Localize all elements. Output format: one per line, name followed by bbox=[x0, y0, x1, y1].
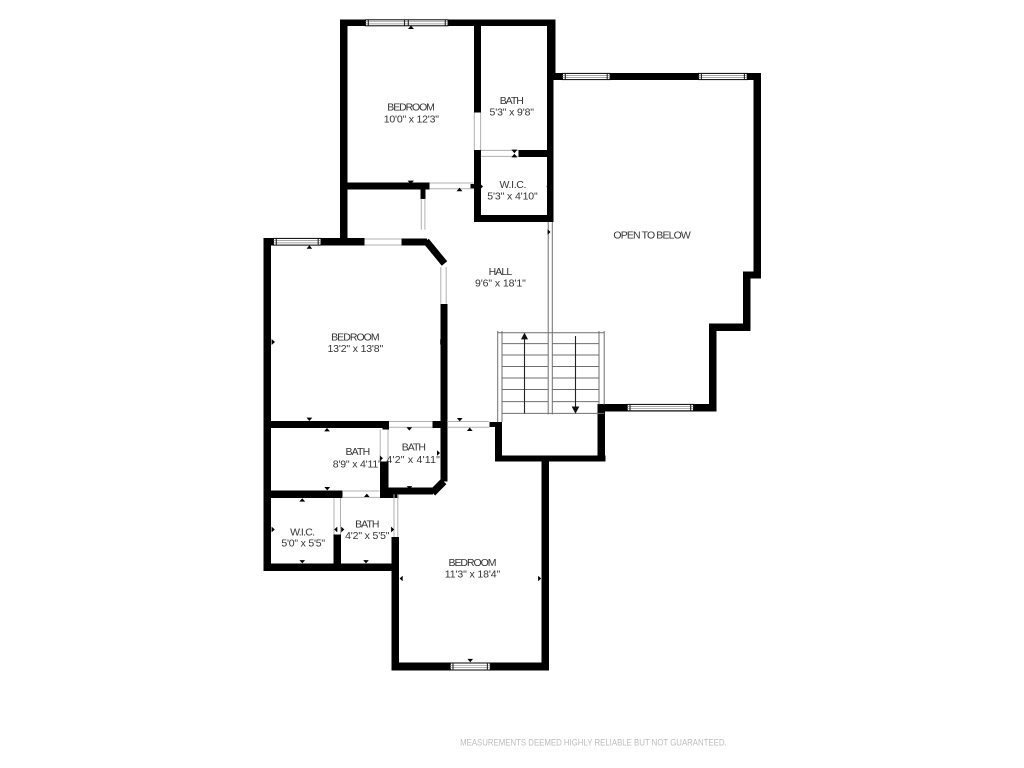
svg-text:BEDROOM: BEDROOM bbox=[387, 102, 435, 114]
svg-text:9'6" x 18'1": 9'6" x 18'1" bbox=[475, 277, 526, 289]
svg-text:10'0" x 12'3": 10'0" x 12'3" bbox=[384, 113, 440, 125]
svg-text:4'2" x 5'5": 4'2" x 5'5" bbox=[345, 530, 390, 542]
svg-text:5'3" x 9'8": 5'3" x 9'8" bbox=[490, 106, 535, 118]
svg-text:5'0" x 5'5": 5'0" x 5'5" bbox=[281, 538, 325, 550]
svg-text:5'3" x 4'10": 5'3" x 4'10" bbox=[487, 191, 538, 203]
svg-text:HALL: HALL bbox=[489, 266, 513, 278]
svg-text:BATH: BATH bbox=[402, 442, 426, 454]
svg-text:BEDROOM: BEDROOM bbox=[331, 332, 380, 344]
svg-text:11'3" x 18'4": 11'3" x 18'4" bbox=[445, 568, 501, 580]
svg-text:W.I.C.: W.I.C. bbox=[500, 179, 527, 191]
svg-text:BATH: BATH bbox=[355, 518, 379, 530]
svg-text:OPEN TO BELOW: OPEN TO BELOW bbox=[613, 230, 690, 242]
svg-text:8'9" x 4'11": 8'9" x 4'11" bbox=[333, 458, 382, 470]
svg-text:MEASUREMENTS DEEMED HIGHLY REL: MEASUREMENTS DEEMED HIGHLY RELIABLE BUT … bbox=[460, 737, 727, 748]
svg-text:BATH: BATH bbox=[500, 95, 524, 107]
svg-text:W.I.C.: W.I.C. bbox=[290, 526, 315, 538]
svg-text:13'2" x 13'8": 13'2" x 13'8" bbox=[328, 343, 384, 355]
svg-text:BATH: BATH bbox=[346, 446, 371, 458]
svg-text:4'2" x 4'11": 4'2" x 4'11" bbox=[386, 454, 440, 466]
